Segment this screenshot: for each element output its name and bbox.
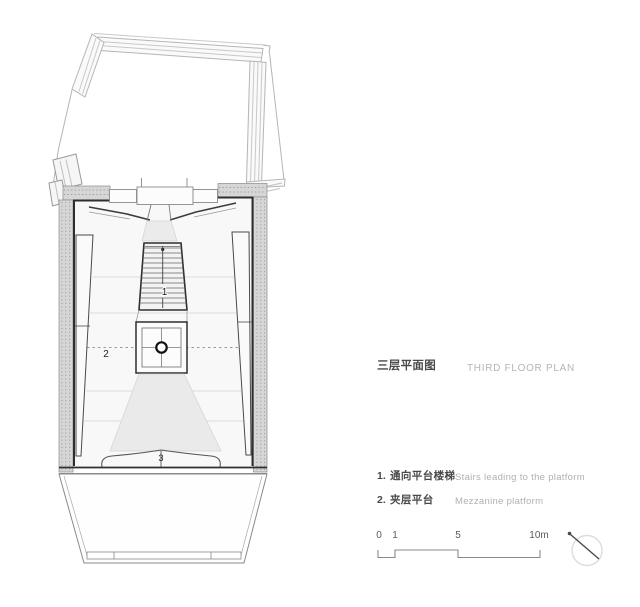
scale-bar [378,550,540,558]
plan-label-marker: 3 [158,453,163,463]
page-title-zh: 三层平面图 [377,361,436,373]
upper-structure-outline [49,34,285,207]
legend-item-2-zh: 夹层平台 [390,495,434,506]
plan-label-stair: 1 [162,287,168,298]
skylight-symbol [136,322,187,373]
legend-item-2-en: Mezzanine platform [455,497,543,507]
floor-plan-drawing: 1 2 3 [0,0,640,607]
plan-label-mezzanine: 2 [103,349,109,360]
legend-item-1-en: Stairs leading to the platform [455,473,585,483]
scale-tick-label-5: 5 [455,531,461,541]
scale-tick-label-0: 0 [376,531,382,541]
page-title-en: THIRD FLOOR PLAN [467,364,575,374]
bottom-deck [59,474,267,563]
scale-tick-label-10m: 10m [529,531,548,541]
north-arrow-icon [568,532,602,566]
scale-tick-label-1: 1 [392,531,398,541]
legend-item-1-number: 1. [377,471,386,482]
entry-panels [110,178,218,205]
light-well-shading-upper [142,221,177,241]
stair-symbol: 1 [136,243,187,322]
legend-item-2-number: 2. [377,495,386,506]
legend-item-1-zh: 通向平台楼梯 [390,471,455,482]
page-background: 1 2 3 [0,0,640,607]
